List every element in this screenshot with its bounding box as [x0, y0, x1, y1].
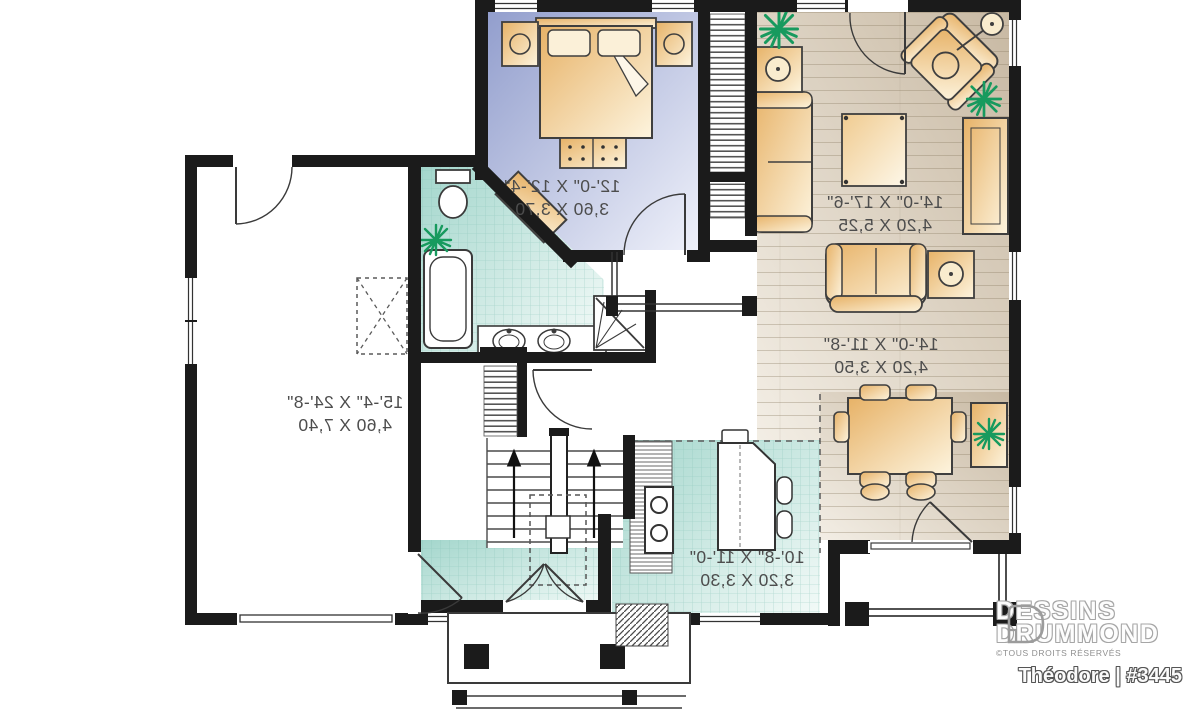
porch-column	[600, 644, 625, 669]
living-dimensions-imperial: 14'-0" X 17'-6"	[827, 192, 944, 212]
plant-icon	[974, 419, 1004, 449]
bathtub	[424, 250, 472, 348]
hall-closet	[484, 366, 517, 436]
dining-dimensions-imperial: 14'-0" X 11'-8"	[823, 334, 938, 354]
bed-bench	[560, 138, 626, 168]
loveseat	[826, 244, 926, 312]
hall-closet-door-arc	[533, 370, 592, 429]
plant-icon	[760, 10, 797, 47]
copyright-notice: ©TOUS DROITS RÉSERVÉS	[996, 648, 1182, 658]
plant-icon	[967, 82, 1001, 116]
garage-dimensions-imperial: 15'-4" X 24'-8"	[287, 392, 404, 412]
deck-rails	[857, 554, 1015, 616]
plant-icon	[421, 225, 451, 255]
garage-attic-access	[357, 278, 407, 354]
deck-post	[845, 602, 869, 626]
bedroom-dimensions-metric: 3,60 X 3,70	[515, 199, 609, 219]
stove	[645, 487, 673, 553]
pillow	[598, 30, 640, 56]
brand-block: DESSINS DRUMMOND ©TOUS DROITS RÉSERVÉS T…	[996, 600, 1182, 688]
plan-title: Théodore | #3445	[996, 665, 1182, 688]
tv-console	[963, 118, 1008, 234]
sofa	[752, 92, 812, 232]
island-stool	[777, 511, 792, 538]
island-stool	[777, 477, 792, 504]
bedroom-closet	[710, 14, 745, 172]
dining-dimensions-metric: 4,20 X 3,50	[834, 357, 928, 377]
linen-closet	[710, 184, 745, 218]
nightstand-right	[656, 22, 692, 66]
kitchen-dimensions-imperial: 10'-8" X 11'-0"	[689, 547, 804, 567]
garage-dimensions-metric: 4,60 X 7,40	[298, 415, 392, 435]
coffee-table	[842, 114, 906, 186]
garage-door	[237, 613, 395, 625]
floor-plan-page: 12'-0" X 12'-4" 3,60 X 3,70 14'-0" X 17'…	[0, 0, 1200, 711]
pillow	[548, 30, 590, 56]
nightstand-left	[502, 22, 538, 66]
rear-deck	[845, 554, 1017, 626]
entrance-closet-box	[546, 516, 570, 538]
porch-column	[464, 644, 489, 669]
side-table-lamp	[755, 47, 802, 92]
living-dimensions-metric: 4,20 X 5,25	[838, 215, 932, 235]
loveseat-side-table	[928, 251, 974, 298]
garage-side-door-arc	[236, 167, 292, 224]
label-garage: 15'-4" X 24'-8" 4,60 X 7,40	[287, 392, 404, 435]
dining-table	[848, 398, 952, 474]
toilet	[436, 170, 470, 218]
porch-steps	[452, 696, 686, 708]
side-steps-hatch	[616, 604, 668, 646]
attic-access-x	[357, 278, 407, 354]
stair-newel	[549, 428, 569, 436]
bedroom-dimensions-imperial: 12'-0" X 12'-4"	[504, 176, 621, 196]
kitchen-dimensions-metric: 3,20 X 3,30	[700, 570, 794, 590]
drummond-d-logo-icon	[1001, 602, 1047, 648]
